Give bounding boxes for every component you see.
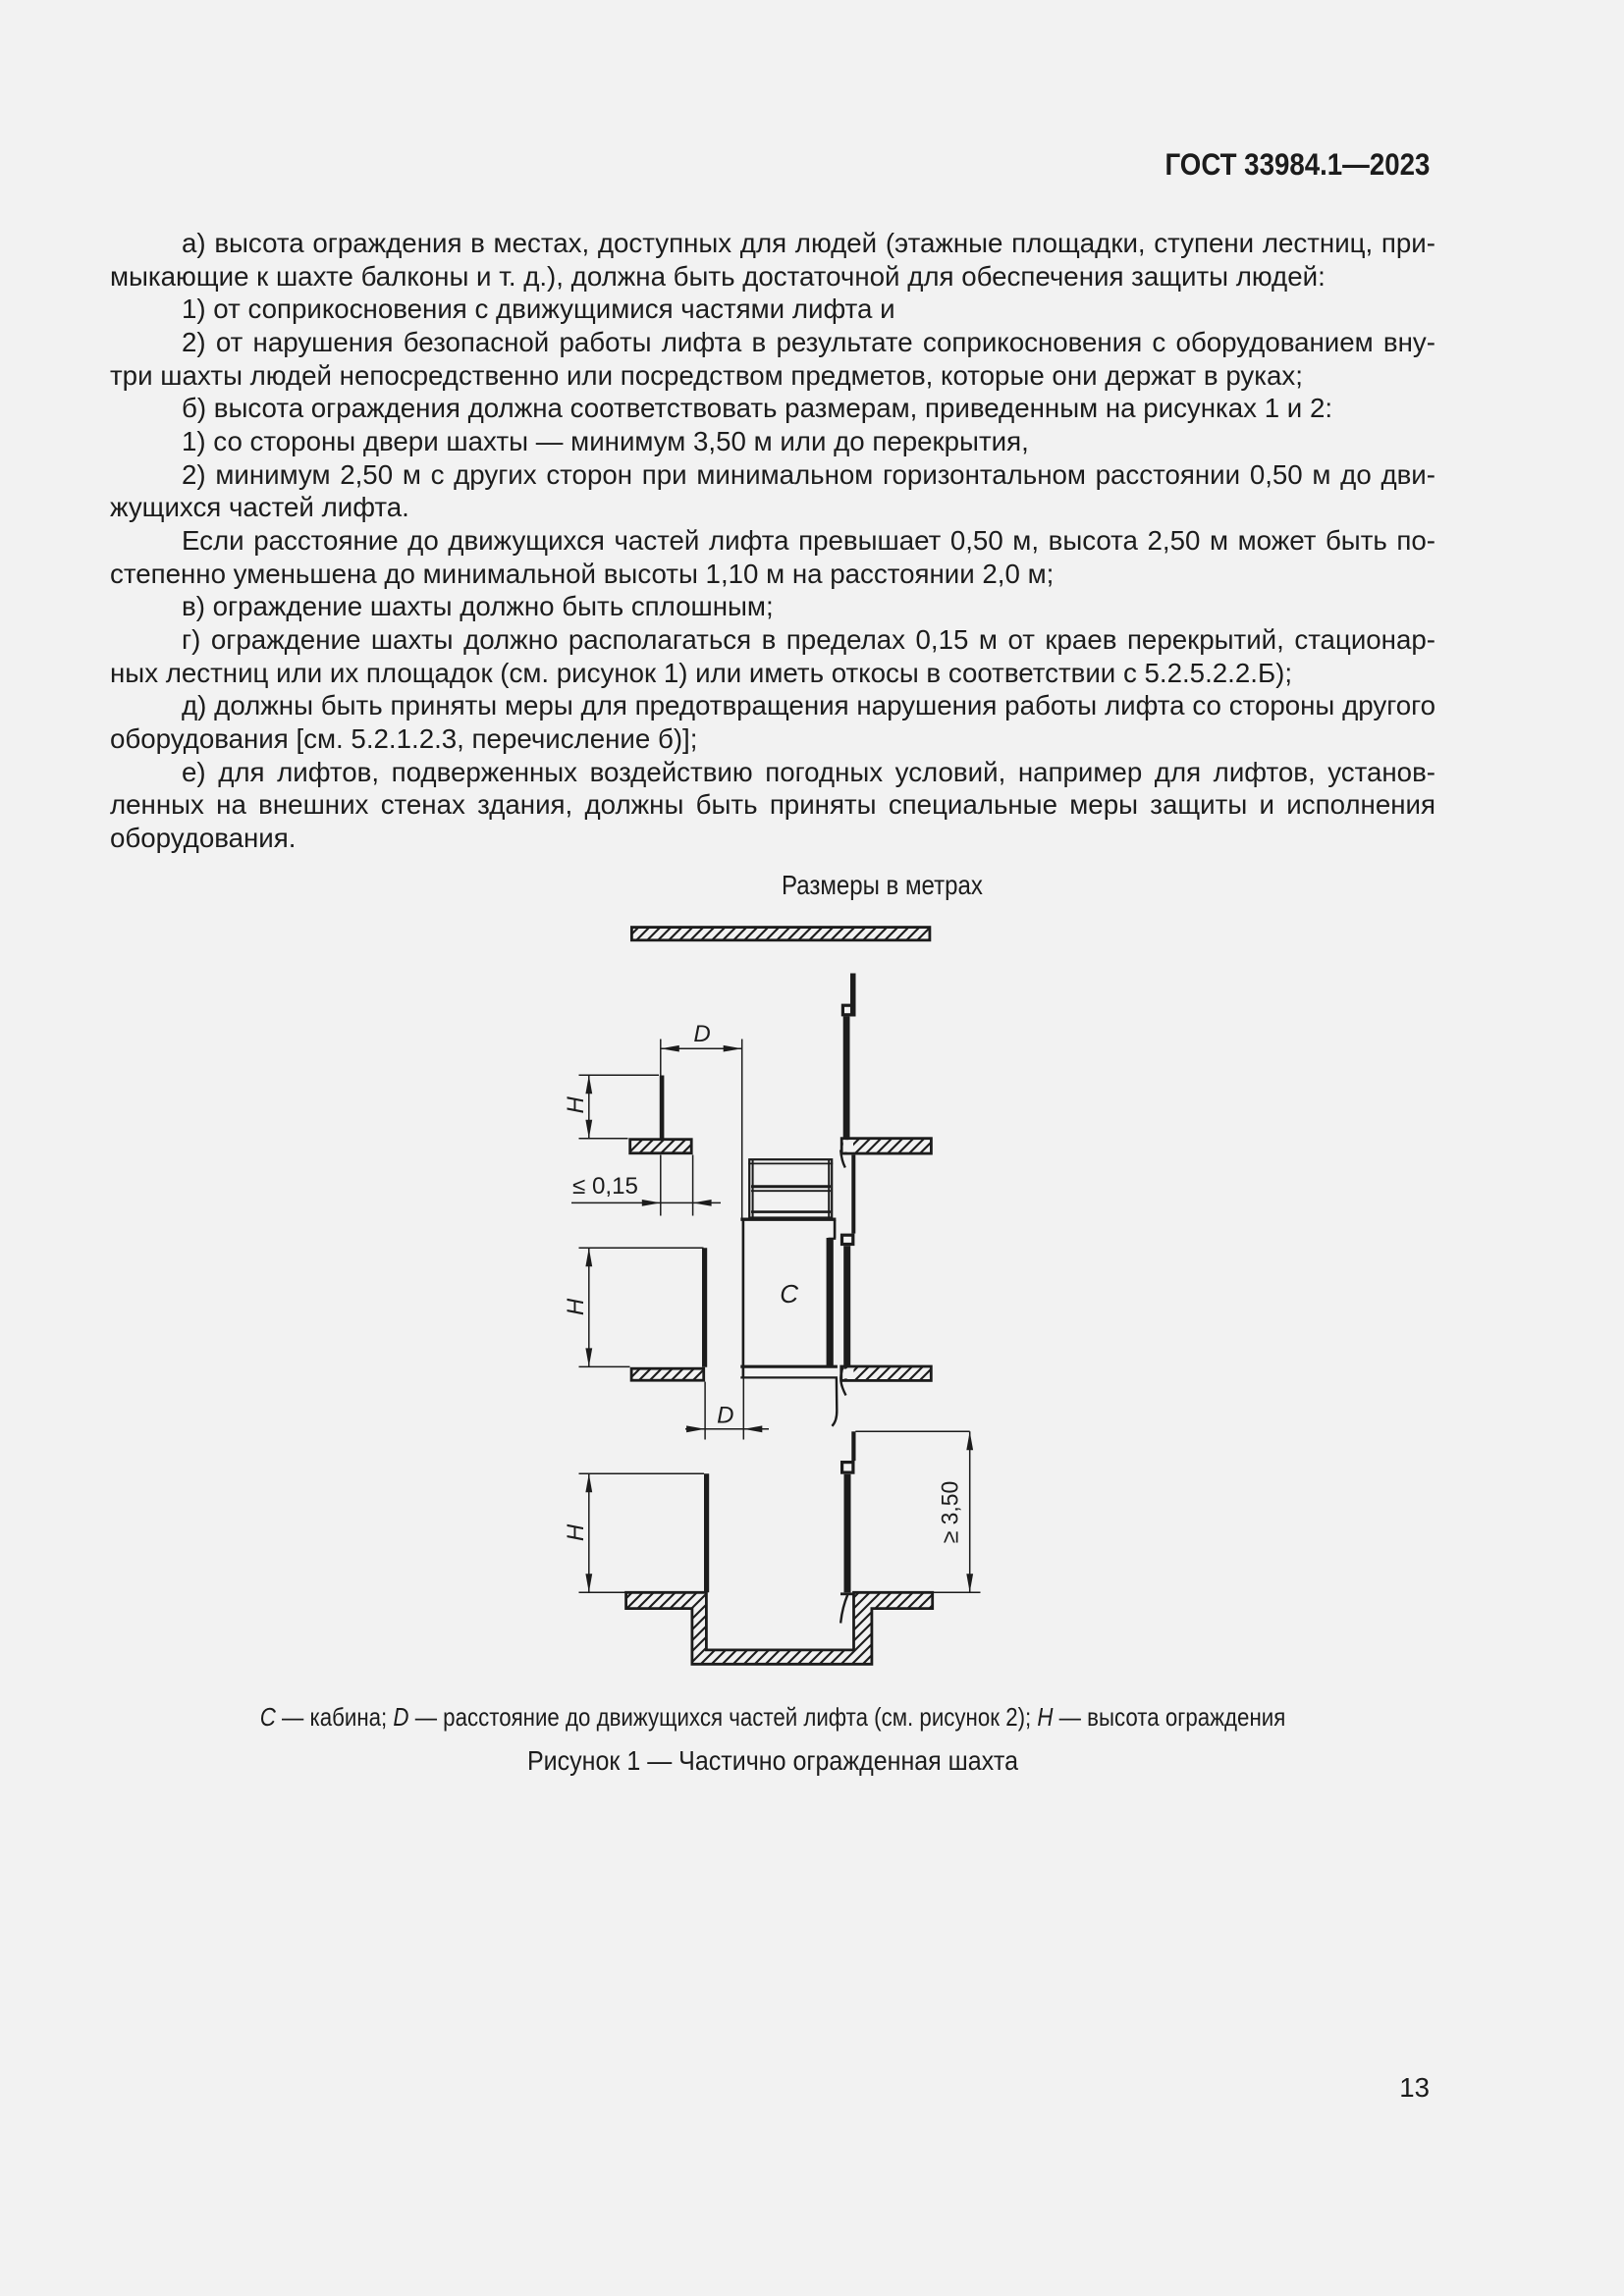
svg-text:D: D	[693, 1021, 710, 1047]
svg-text:C: C	[780, 1279, 798, 1308]
svg-text:≤ 0,15: ≤ 0,15	[572, 1173, 638, 1200]
svg-text:≥ 3,50: ≥ 3,50	[938, 1481, 964, 1544]
svg-text:H: H	[563, 1298, 589, 1315]
svg-text:H: H	[563, 1095, 589, 1113]
svg-text:H: H	[563, 1523, 589, 1541]
svg-text:D: D	[717, 1403, 733, 1429]
